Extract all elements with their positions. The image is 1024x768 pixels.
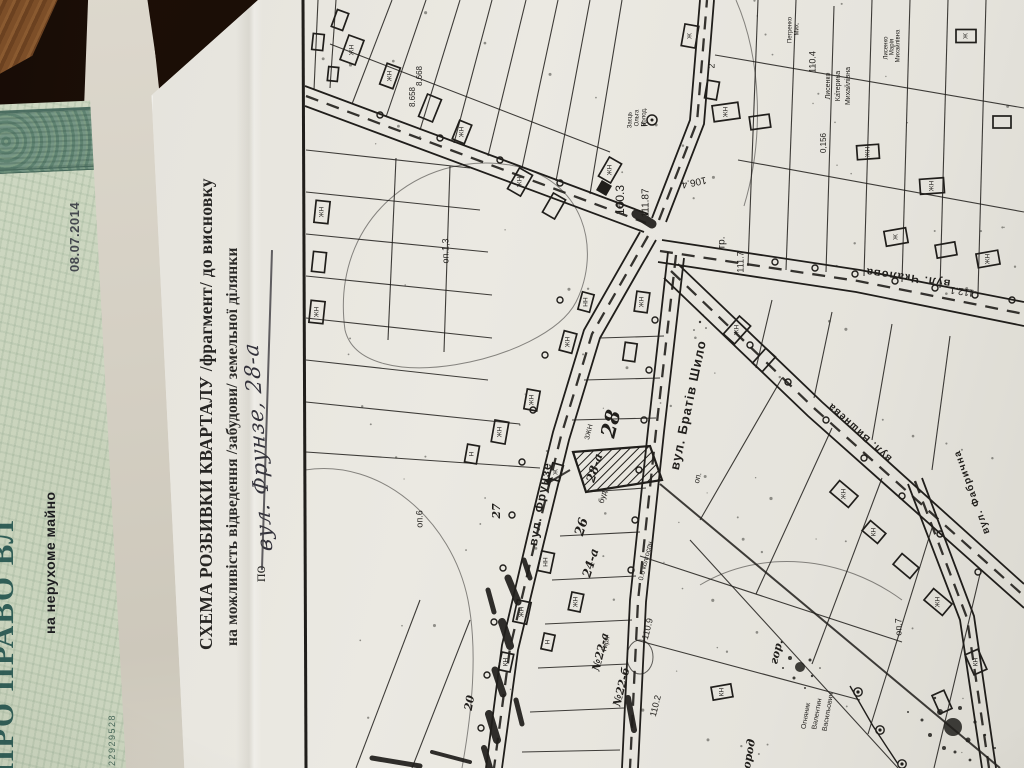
svg-text:106.4: 106.4 bbox=[680, 174, 707, 190]
svg-text:КН: КН bbox=[871, 527, 878, 536]
svg-text:ЖН: ЖН bbox=[841, 488, 848, 499]
svg-text:24-а: 24-а bbox=[579, 547, 601, 580]
svg-text:Ж: Ж bbox=[893, 234, 900, 240]
svg-text:НН: НН bbox=[543, 557, 550, 567]
svg-text:ЖН: ЖН bbox=[723, 106, 730, 117]
svg-text:Ж: Ж bbox=[553, 469, 560, 475]
svg-text:ЖН: ЖН bbox=[517, 176, 524, 187]
svg-text:Катерина: Катерина bbox=[835, 71, 842, 102]
certificate-date: 08.07.2014 bbox=[67, 188, 82, 272]
svg-text:0.6 колгоспн.: 0.6 колгоспн. bbox=[638, 539, 655, 582]
svg-text:28-а: 28-а bbox=[583, 452, 605, 485]
svg-text:160.3: 160.3 bbox=[613, 185, 627, 215]
svg-text:Лисенко: Лисенко bbox=[884, 36, 890, 60]
svg-text:ЖН: ЖН bbox=[565, 336, 572, 347]
svg-text:оп.: оп. bbox=[692, 471, 703, 484]
svg-text:ЖН: ЖН bbox=[639, 296, 646, 307]
svg-text:буд: буд bbox=[597, 489, 609, 504]
svg-text:111.7: 111.7 bbox=[735, 251, 745, 272]
parcel-boundary-lines bbox=[306, 0, 1024, 768]
svg-text:Ж: Ж bbox=[963, 33, 970, 39]
certificate-serial-number: 22929528 bbox=[107, 692, 117, 766]
roads bbox=[305, 0, 1024, 768]
svg-text:ЗЖН: ЗЖН bbox=[584, 424, 595, 441]
svg-text:№22-а: №22-а bbox=[589, 631, 611, 673]
svg-text:2: 2 bbox=[706, 63, 716, 68]
svg-text:Ольга: Ольга bbox=[635, 109, 641, 126]
svg-text:8.668: 8.668 bbox=[415, 65, 424, 86]
svg-text:ЖН: ЖН bbox=[529, 394, 536, 405]
svg-text:8.658: 8.658 bbox=[408, 86, 417, 107]
svg-text:ЖН: ЖН bbox=[519, 606, 526, 617]
svg-text:вул. Фабрична: вул. Фабрична bbox=[951, 448, 993, 536]
svg-text:Огняник: Огняник bbox=[801, 701, 813, 729]
svg-text:Ж: Ж bbox=[687, 33, 694, 39]
svg-text:Заєць: Заєць bbox=[628, 112, 634, 129]
svg-text:КН: КН bbox=[719, 687, 726, 696]
svg-text:вул. Братів Шило: вул. Братів Шило bbox=[667, 338, 709, 471]
svg-text:ЖН: ЖН bbox=[349, 44, 356, 55]
map-labels: вул. Чкаловавул. Братів Шиловул. Фрунзев… bbox=[408, 16, 992, 768]
utility-poles bbox=[377, 112, 1015, 768]
svg-text:Мих.: Мих. bbox=[795, 22, 801, 35]
svg-text:0,156: 0,156 bbox=[819, 132, 828, 153]
svg-text:тр.: тр. bbox=[717, 237, 728, 250]
certificate-title-partial: ПРО ПРАВО ВЛ bbox=[0, 434, 21, 768]
svg-text:28: 28 bbox=[595, 407, 625, 441]
svg-text:27: 27 bbox=[490, 503, 503, 520]
svg-text:ЖН: ЖН bbox=[314, 306, 321, 317]
svg-text:110.9: 110.9 bbox=[640, 617, 655, 641]
ink-splatters bbox=[693, 314, 996, 761]
svg-text:Михайлівна: Михайлівна bbox=[895, 29, 902, 62]
svg-text:112.1: 112.1 bbox=[949, 284, 975, 298]
wood-table-grain bbox=[0, 0, 90, 90]
svg-text:ЖН: ЖН bbox=[387, 70, 394, 81]
speckle-noise bbox=[322, 0, 1016, 755]
svg-text:КН: КН bbox=[503, 657, 510, 666]
svg-text:Гиря: Гиря bbox=[601, 636, 611, 652]
svg-text:Н: Н bbox=[545, 639, 552, 644]
svg-text:ЖН: ЖН bbox=[865, 146, 872, 157]
svg-text:Михайлівна: Михайлівна bbox=[844, 67, 852, 105]
svg-text:Волод.: Волод. bbox=[642, 107, 648, 126]
svg-text:ЖН: ЖН bbox=[607, 164, 614, 175]
buildings: ЖНЖНЖНЖНЖНЖНЖНЖНЖЖЖНЖНЖНЖЖНЖНКНЖНКНЖНЖНН… bbox=[309, 9, 1011, 713]
svg-text:вул. Вишнева: вул. Вишнева bbox=[826, 400, 895, 463]
svg-text:КН: КН bbox=[973, 657, 980, 666]
svg-text:Лисенко: Лисенко bbox=[825, 72, 832, 99]
map-frame-line bbox=[303, 0, 306, 768]
svg-text:ЖН: ЖН bbox=[319, 206, 326, 217]
svg-text:ЖН: ЖН bbox=[459, 126, 466, 137]
svg-text:№22-б: №22-б bbox=[610, 666, 632, 709]
subject-parcel-28a bbox=[545, 446, 662, 492]
svg-text:НН: НН bbox=[583, 297, 590, 307]
photo-of-documents: ПРО ПРАВО ВЛ на нерухоме майно 08.07.201… bbox=[0, 0, 1024, 768]
svg-text:город: город bbox=[739, 738, 758, 768]
contour-lines bbox=[305, 0, 902, 768]
svg-text:оп.1,3: оп.1,3 bbox=[440, 239, 450, 264]
svg-text:ЖН: ЖН bbox=[985, 253, 992, 264]
svg-text:гор.: гор. bbox=[767, 638, 786, 666]
svg-text:вул. Чкалова: вул. Чкалова bbox=[865, 265, 951, 289]
svg-text:Н: Н bbox=[469, 451, 476, 456]
scheme-title-line2: на можливість відведення /забудови/ земе… bbox=[224, 31, 242, 646]
svg-text:ЖН: ЖН bbox=[935, 596, 942, 607]
certificate-subtitle: на нерухоме майно bbox=[42, 424, 58, 634]
svg-text:ЖН: ЖН bbox=[929, 180, 936, 191]
svg-text:110.2: 110.2 bbox=[648, 694, 663, 718]
svg-text:20: 20 bbox=[462, 694, 478, 713]
svg-text:Васильович: Васильович bbox=[822, 692, 836, 732]
svg-text:оп.7: оп.7 bbox=[893, 618, 903, 635]
svg-text:К: К bbox=[639, 121, 649, 127]
svg-text:оп.6: оп.6 bbox=[414, 510, 424, 527]
svg-text:ЖН: ЖН bbox=[497, 426, 504, 437]
svg-text:26: 26 bbox=[572, 516, 592, 539]
svg-text:Петренко: Петренко bbox=[788, 16, 794, 43]
svg-text:111.87: 111.87 bbox=[641, 188, 652, 218]
svg-text:Марія: Марія bbox=[890, 39, 896, 55]
svg-text:ЖН: ЖН bbox=[573, 596, 580, 607]
scheme-title-line1: СХЕМА РОЗБИВКИ КВАРТАЛУ /фрагмент/ до ви… bbox=[196, 32, 217, 650]
svg-text:110.4: 110.4 bbox=[807, 51, 817, 73]
svg-text:Валентин: Валентин bbox=[811, 698, 823, 730]
photocopy-smears bbox=[372, 214, 652, 768]
svg-text:ЖН: ЖН bbox=[734, 324, 741, 335]
svg-text:вул. Фрунзе: вул. Фрунзе bbox=[526, 461, 555, 547]
